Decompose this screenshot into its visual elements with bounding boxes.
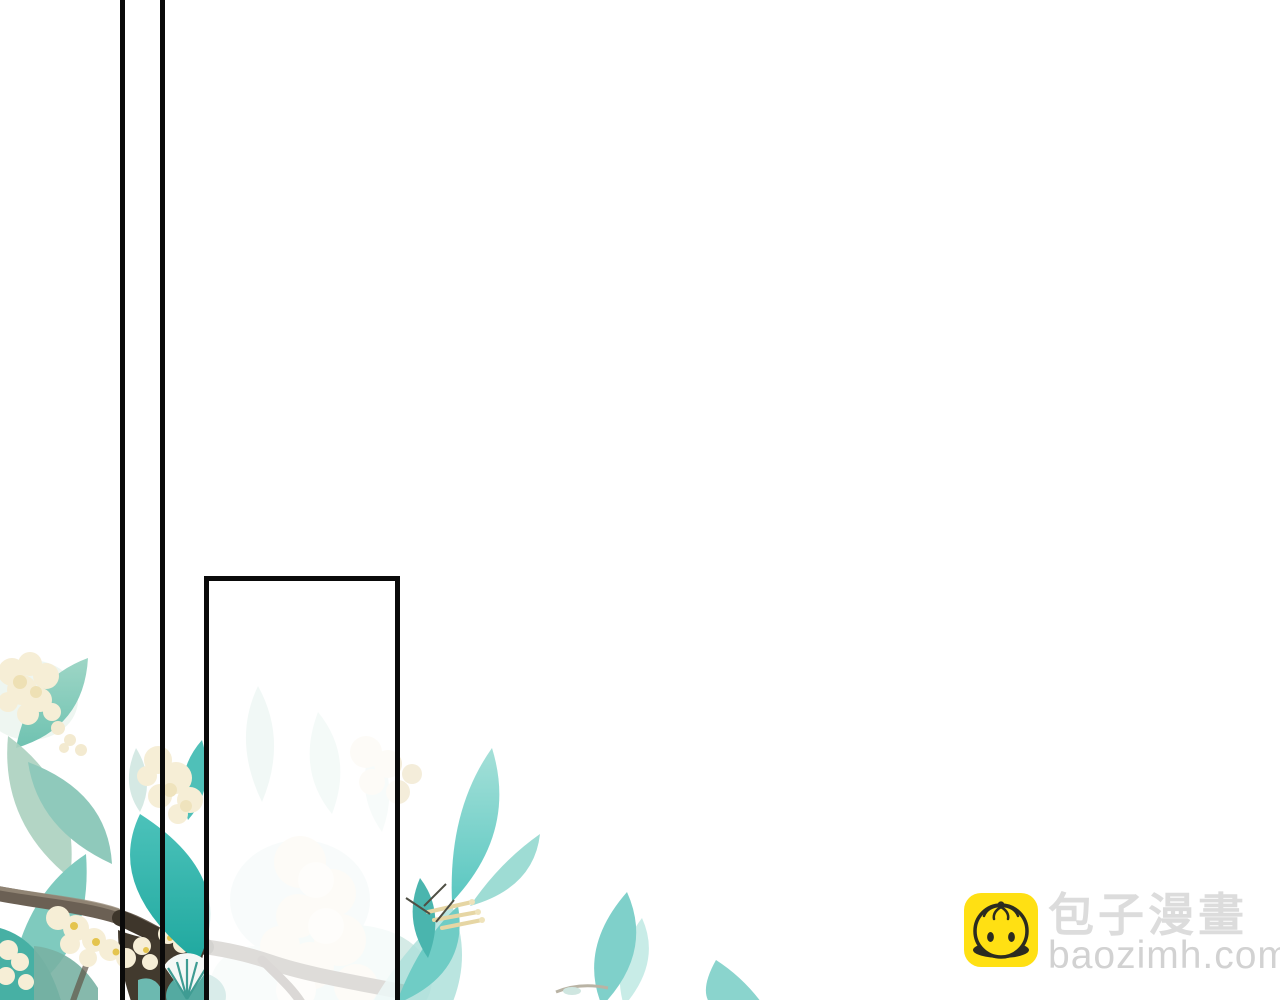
petal xyxy=(30,686,42,698)
panel-border-line-2 xyxy=(160,0,165,1000)
site-watermark: 包子漫畫 baozimh.com xyxy=(963,892,1280,975)
petal xyxy=(402,764,422,784)
petal xyxy=(33,663,59,689)
petal xyxy=(18,974,34,990)
petal xyxy=(180,800,192,812)
petal xyxy=(11,953,29,971)
petal xyxy=(137,766,157,786)
stamen xyxy=(143,947,149,953)
floral-artwork xyxy=(0,598,840,1000)
leaf-cluster-right xyxy=(372,748,764,1000)
leaf xyxy=(563,987,581,995)
stamen xyxy=(70,922,78,930)
bud xyxy=(51,721,65,735)
twig-knot xyxy=(479,917,485,923)
panel-frame xyxy=(204,576,400,1000)
petal xyxy=(142,954,158,970)
brand-name: 包子漫畫 xyxy=(1048,892,1280,939)
petal xyxy=(17,703,39,725)
petal xyxy=(133,937,151,955)
bun-eye-left xyxy=(987,932,994,942)
stamen xyxy=(92,938,100,946)
petal xyxy=(163,783,177,797)
panel-border-line-1 xyxy=(120,0,125,1000)
bun-eye-right xyxy=(1008,932,1015,942)
bud xyxy=(59,743,69,753)
petal xyxy=(43,703,61,721)
twig-knot xyxy=(475,909,481,915)
site-url: baozimh.com xyxy=(1048,937,1280,975)
petal xyxy=(60,934,80,954)
watermark-text: 包子漫畫 baozimh.com xyxy=(1048,892,1280,975)
bun-dome xyxy=(975,905,1027,957)
stamen xyxy=(113,949,120,956)
petal xyxy=(13,675,27,689)
leaf xyxy=(706,960,764,1000)
petal xyxy=(79,949,97,967)
comic-page: 包子漫畫 baozimh.com xyxy=(0,0,1280,1000)
bud xyxy=(75,744,87,756)
baozi-bun-icon xyxy=(963,892,1039,968)
twig-knot xyxy=(469,899,475,905)
